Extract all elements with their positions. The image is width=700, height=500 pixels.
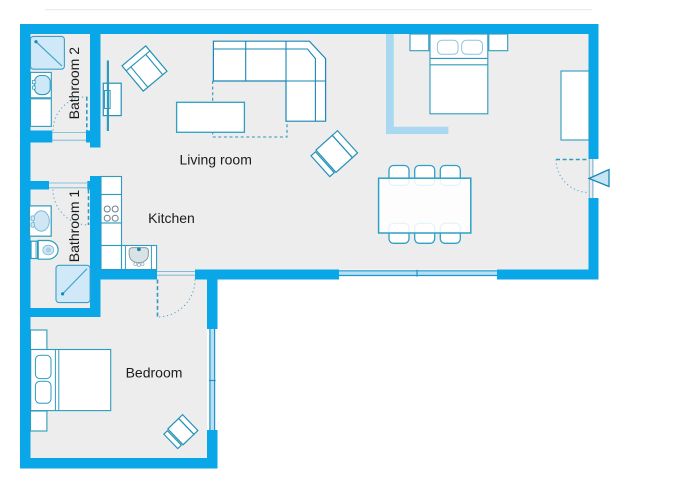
svg-text:Bedroom: Bedroom xyxy=(126,365,183,381)
svg-text:Bathroom 1: Bathroom 1 xyxy=(66,190,82,263)
svg-text:Kitchen: Kitchen xyxy=(148,210,195,226)
svg-text:Bathroom 2: Bathroom 2 xyxy=(66,47,82,120)
svg-text:Living room: Living room xyxy=(180,151,252,167)
